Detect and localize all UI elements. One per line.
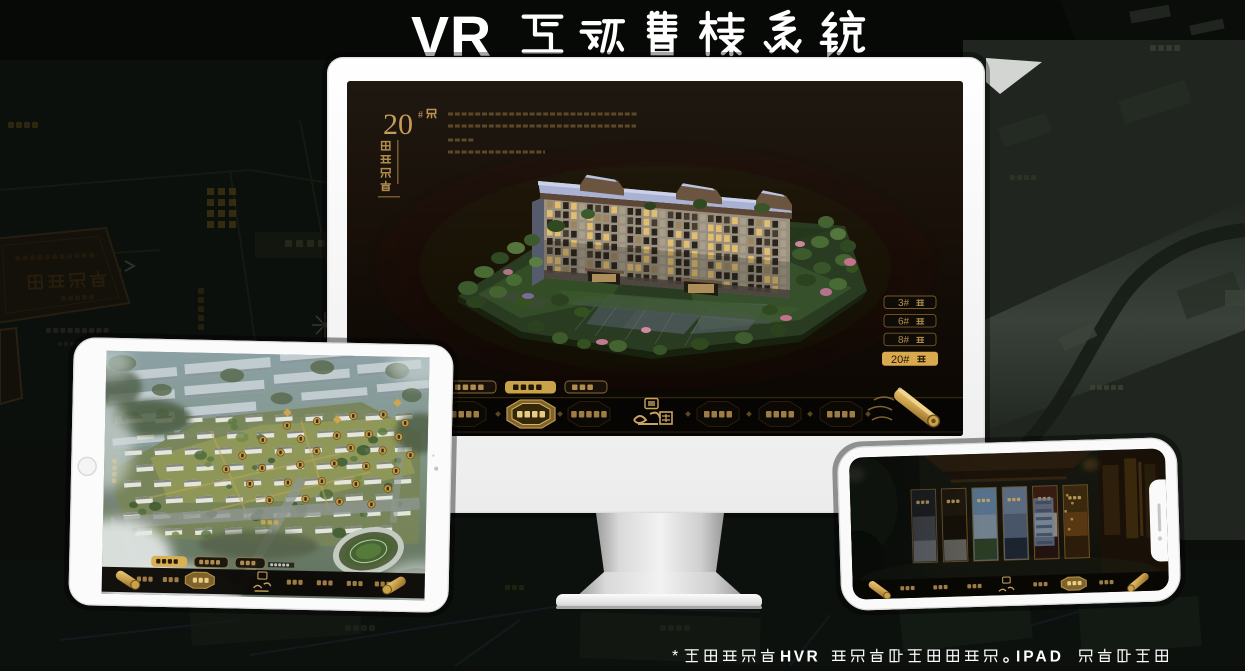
svg-text:HVR: HVR xyxy=(780,649,820,666)
svg-text:20#: 20# xyxy=(891,354,910,366)
svg-text:#: # xyxy=(418,110,423,121)
svg-text:*: * xyxy=(672,648,678,665)
svg-text:8#: 8# xyxy=(898,335,910,346)
svg-text:3#: 3# xyxy=(898,298,910,309)
svg-text:IPAD: IPAD xyxy=(1016,649,1064,666)
svg-text:6#: 6# xyxy=(898,317,910,328)
svg-text:20: 20 xyxy=(383,108,413,141)
